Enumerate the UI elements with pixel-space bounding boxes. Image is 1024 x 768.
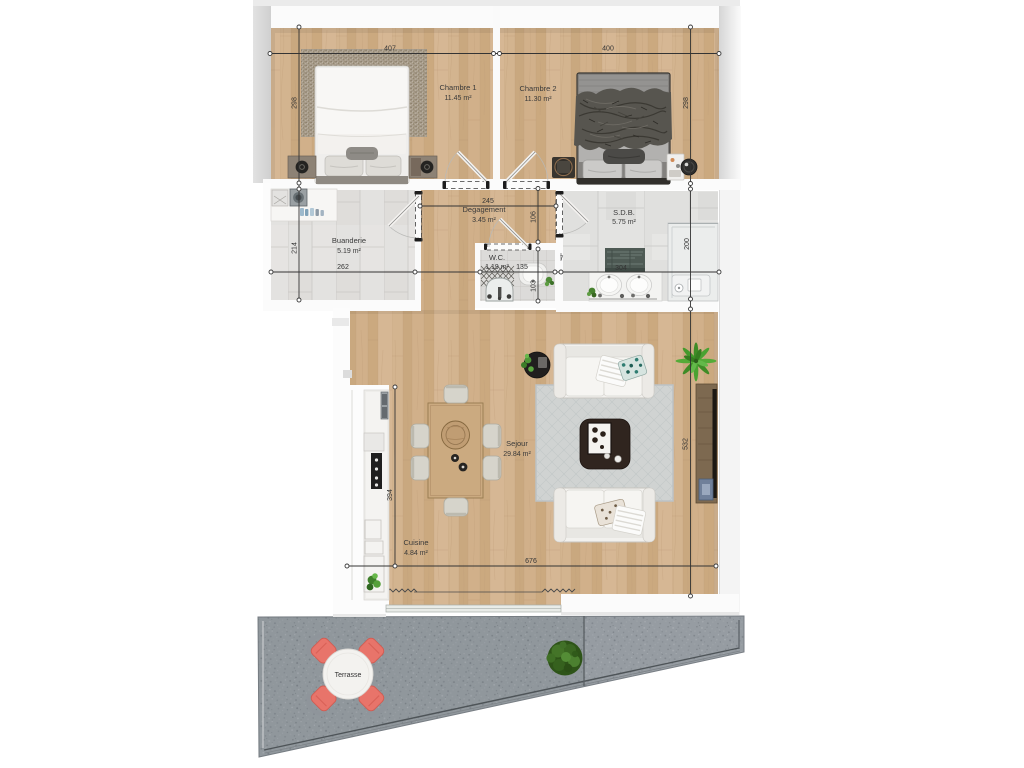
svg-text:532: 532 [683,438,690,450]
svg-text:103: 103 [531,280,538,292]
svg-text:Buanderie: Buanderie [332,236,366,245]
svg-text:3.45 m²: 3.45 m² [472,217,496,224]
svg-text:5.75 m²: 5.75 m² [612,219,636,226]
svg-text:Degagement: Degagement [463,205,507,214]
svg-text:4.84 m²: 4.84 m² [404,550,428,557]
svg-text:214: 214 [292,242,299,254]
svg-text:394: 394 [387,489,394,501]
svg-text:1.19 m²: 1.19 m² [485,264,509,271]
svg-text:304: 304 [615,265,627,272]
svg-text:400: 400 [602,46,614,53]
svg-text:Terrasse: Terrasse [335,672,362,679]
svg-text:W.C.: W.C. [489,253,505,262]
svg-text:245: 245 [482,198,494,205]
svg-text:11.30 m²: 11.30 m² [524,96,552,103]
svg-text:Chambre 1: Chambre 1 [439,83,476,92]
svg-text:262: 262 [337,264,349,271]
svg-text:Chambre 2: Chambre 2 [519,84,556,93]
svg-text:29.84 m²: 29.84 m² [503,451,531,458]
svg-text:200: 200 [684,238,691,250]
svg-text:Sejour: Sejour [506,439,528,448]
svg-text:298: 298 [683,97,690,109]
svg-text:S.D.B.: S.D.B. [613,208,635,217]
svg-text:407: 407 [384,46,396,53]
svg-text:135: 135 [516,264,528,271]
svg-text:676: 676 [525,558,537,565]
svg-text:5.19 m²: 5.19 m² [337,248,361,255]
svg-text:11.45 m²: 11.45 m² [444,95,472,102]
svg-text:106: 106 [531,211,538,223]
svg-text:Cuisine: Cuisine [403,538,428,547]
svg-text:298: 298 [292,97,299,109]
